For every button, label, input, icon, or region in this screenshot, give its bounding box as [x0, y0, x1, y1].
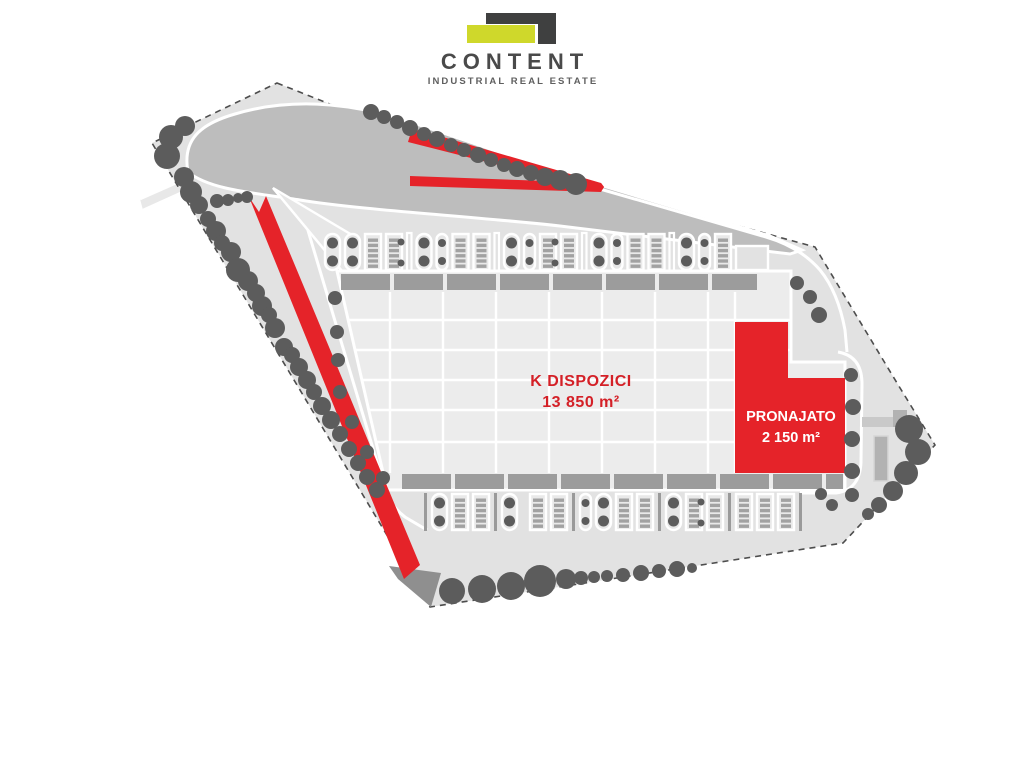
available-area-label: K DISPOZICI	[530, 373, 632, 390]
tree-icon	[905, 439, 931, 465]
tree-icon	[669, 561, 685, 577]
tree-icon	[844, 431, 860, 447]
rented-area-size: 2 150 m²	[762, 430, 820, 446]
tree-icon	[341, 441, 357, 457]
tree-icon	[574, 571, 588, 585]
tree-icon	[154, 143, 180, 169]
tree-icon	[556, 569, 576, 589]
tree-icon	[601, 570, 613, 582]
site-plan-drawing: K DISPOZICI 13 850 m² PRONAJATO 2 150 m²	[0, 0, 1024, 768]
tree-icon	[803, 290, 817, 304]
tree-icon	[588, 571, 600, 583]
tree-icon	[565, 173, 587, 195]
tree-icon	[894, 461, 918, 485]
available-area-size: 13 850 m²	[542, 394, 619, 411]
tree-icon	[377, 110, 391, 124]
tree-icon	[210, 194, 224, 208]
tree-icon	[345, 415, 359, 429]
tree-icon	[265, 318, 285, 338]
tree-icon	[883, 481, 903, 501]
tree-icon	[862, 508, 874, 520]
tree-icon	[790, 276, 804, 290]
tree-icon	[509, 161, 525, 177]
tree-icon	[402, 120, 418, 136]
tree-icon	[524, 565, 556, 597]
tree-icon	[444, 138, 458, 152]
tree-icon	[826, 499, 838, 511]
tree-icon	[652, 564, 666, 578]
tree-icon	[871, 497, 887, 513]
tree-icon	[497, 158, 511, 172]
tree-icon	[429, 131, 445, 147]
tree-icon	[331, 353, 345, 367]
tree-icon	[470, 147, 486, 163]
rented-area-label: PRONAJATO	[746, 409, 836, 425]
tree-icon	[687, 563, 697, 573]
tree-icon	[845, 399, 861, 415]
tree-icon	[457, 143, 471, 157]
tree-icon	[633, 565, 649, 581]
tree-icon	[484, 153, 498, 167]
tree-icon	[190, 196, 208, 214]
tree-icon	[322, 411, 340, 429]
tree-icon	[844, 463, 860, 479]
tree-icon	[363, 104, 379, 120]
tree-icon	[360, 445, 374, 459]
tree-icon	[815, 488, 827, 500]
tree-icon	[845, 488, 859, 502]
tree-icon	[376, 471, 390, 485]
tree-icon	[468, 575, 496, 603]
site-plan-page: CONTENT INDUSTRIAL REAL ESTATE K DISPOZI…	[0, 0, 1024, 768]
tree-icon	[328, 291, 342, 305]
tree-icon	[439, 578, 465, 604]
tree-icon	[616, 568, 630, 582]
tree-icon	[330, 325, 344, 339]
tree-icon	[417, 127, 431, 141]
tree-icon	[390, 115, 404, 129]
tree-icon	[497, 572, 525, 600]
tree-icon	[222, 194, 234, 206]
tree-icon	[811, 307, 827, 323]
tree-icon	[332, 426, 348, 442]
tree-icon	[359, 469, 375, 485]
tree-icon	[844, 368, 858, 382]
tree-icon	[241, 191, 253, 203]
tree-icon	[333, 385, 347, 399]
tree-icon	[895, 415, 923, 443]
